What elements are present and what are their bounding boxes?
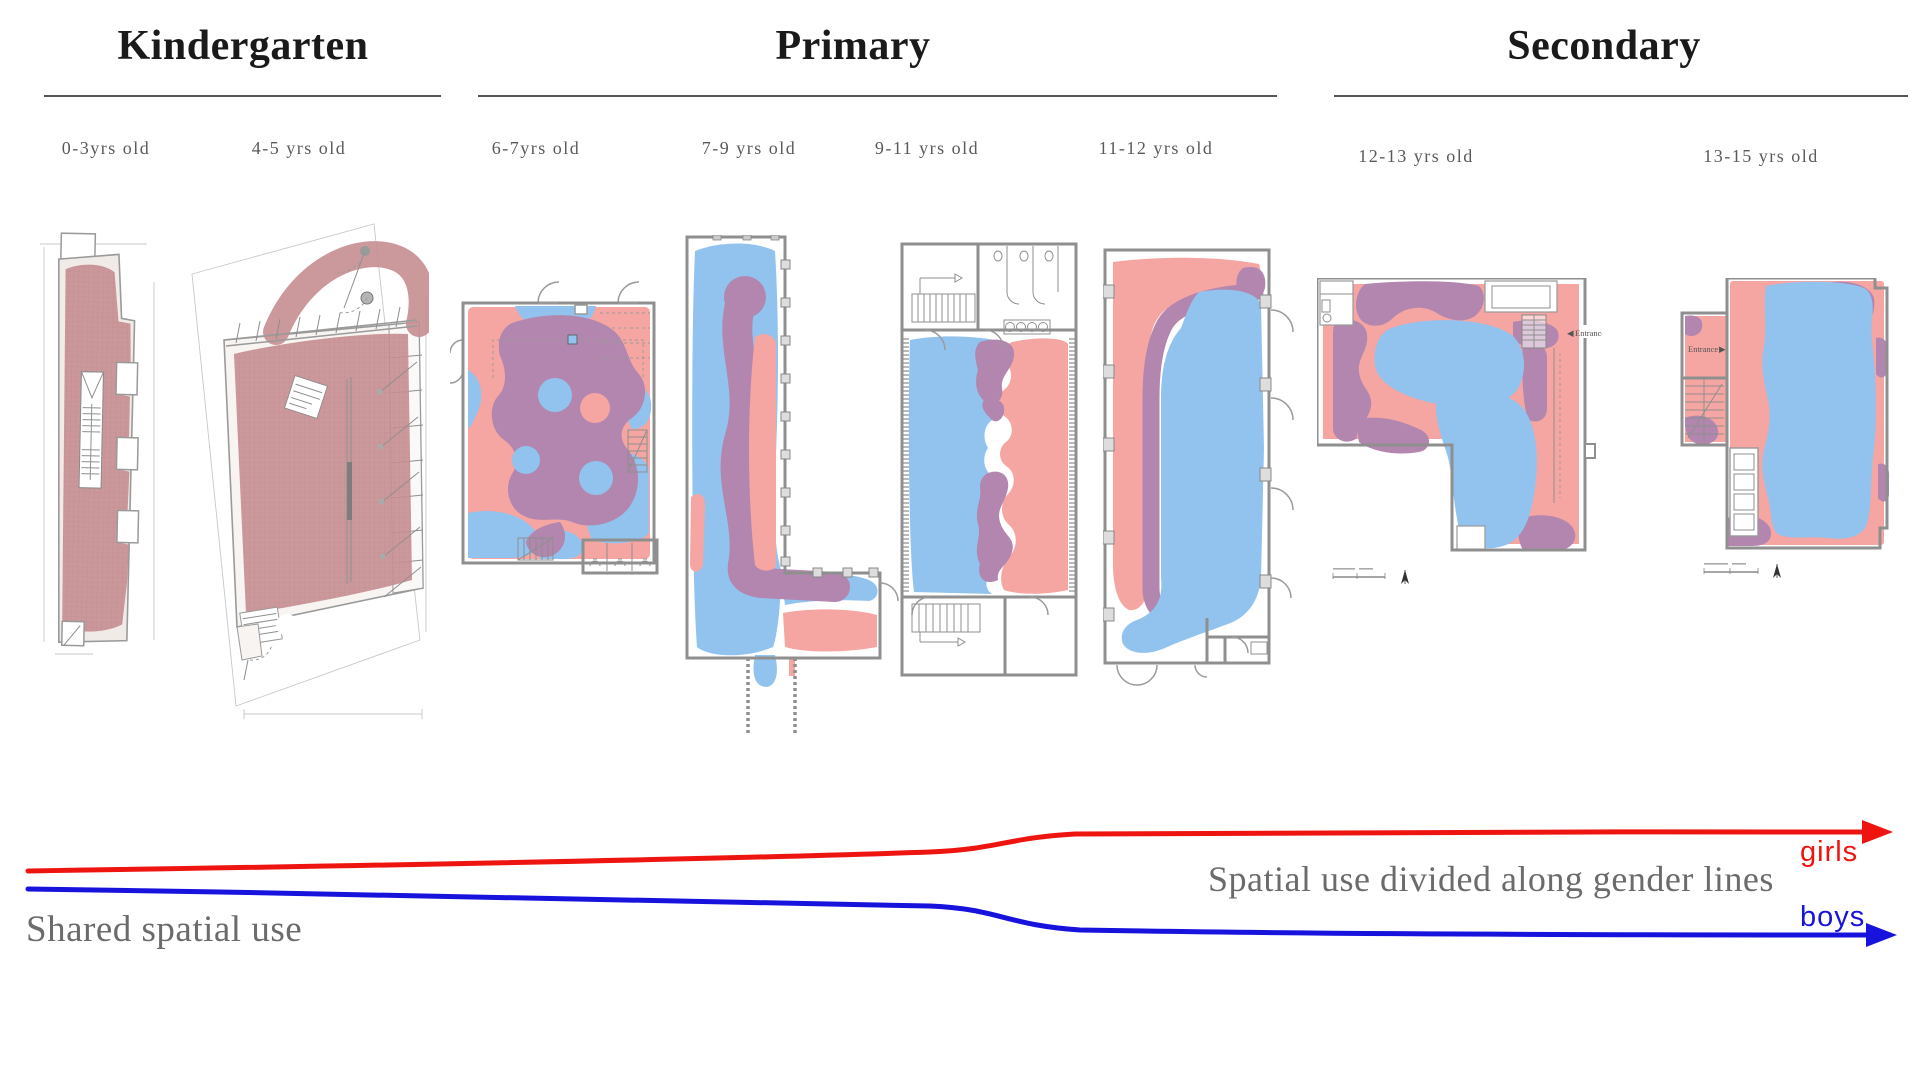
- floor-plan-6-7yrs-drawing: [450, 278, 660, 580]
- floor-plan-4-5yrs: [184, 212, 429, 747]
- floor-plan-12-13yrs-drawing: ◀ Entrance: [1317, 278, 1602, 593]
- stairs: [1522, 315, 1546, 348]
- floor-plan-9-11yrs-drawing: [900, 242, 1078, 677]
- pilasters: [781, 260, 878, 577]
- floor-plan-7-9yrs-drawing: [685, 235, 900, 740]
- side-room: [117, 510, 139, 542]
- floor-plan-11-12yrs-drawing: [1103, 248, 1298, 688]
- girls-area-blob: [749, 334, 776, 570]
- floor-plan-0-3yrs: [35, 222, 161, 662]
- floor-plan-4-5yrs-drawing: [184, 212, 429, 747]
- shared-spatial-use-label: Shared spatial use: [26, 908, 302, 951]
- entrance-annotation: Entrance: [1575, 328, 1602, 338]
- small-room: [1457, 526, 1485, 550]
- bathroom: [1320, 281, 1353, 325]
- boys-area-blob: [579, 461, 613, 495]
- shared-overlap-blob: [1876, 338, 1887, 378]
- entrance-arrow-icon: ◀: [1567, 328, 1574, 338]
- boys-area-blob: [754, 655, 777, 687]
- north-arrow-icon: [1773, 564, 1781, 578]
- floor-plan-13-15yrs-drawing: Entrance ▶: [1680, 278, 1892, 580]
- rule-primary: [478, 95, 1277, 97]
- shared-use-hook-arm: [276, 254, 422, 332]
- scale-bar: [1704, 563, 1758, 574]
- entrance-annotation: Entrance: [1688, 344, 1718, 354]
- age-label-13-15: 13-15 yrs old: [1676, 146, 1846, 167]
- age-label-0-3: 0-3yrs old: [21, 138, 191, 159]
- section-title-primary: Primary: [653, 22, 1053, 70]
- rule-kindergarten: [44, 95, 441, 97]
- age-label-7-9: 7-9 yrs old: [664, 138, 834, 159]
- age-label-9-11: 9-11 yrs old: [842, 138, 1012, 159]
- side-room: [116, 437, 138, 469]
- scale-bar: [1333, 568, 1385, 579]
- floor-plan-11-12yrs: [1103, 248, 1298, 688]
- side-room: [116, 362, 138, 394]
- age-label-11-12: 11-12 yrs old: [1071, 138, 1241, 159]
- section-title-kindergarten: Kindergarten: [43, 22, 443, 70]
- floor-plan-6-7yrs: [450, 278, 660, 580]
- gender-timeline: [0, 800, 1920, 1000]
- girls-arrowhead-icon: [1862, 820, 1893, 844]
- shared-overlap-blob: [1522, 343, 1547, 422]
- floor-plan-9-11yrs: [900, 242, 1078, 677]
- divided-spatial-use-label: Spatial use divided along gender lines: [1208, 858, 1788, 900]
- floor-plan-12-13yrs: ◀ Entrance: [1317, 278, 1602, 593]
- boys-arrowhead-icon: [1866, 923, 1897, 947]
- floor-plan-7-9yrs: [685, 235, 900, 740]
- age-label-6-7: 6-7yrs old: [451, 138, 621, 159]
- boys-area-blob: [1762, 282, 1876, 539]
- girls-area-blob: [783, 609, 877, 651]
- floor-plan-0-3yrs-drawing: [35, 222, 161, 662]
- shared-overlap-blob: [492, 315, 645, 525]
- floor-plan-13-15yrs: Entrance ▶: [1680, 278, 1892, 580]
- girls-area-blob: [690, 494, 705, 572]
- boys-label: boys: [1800, 901, 1865, 934]
- age-label-4-5: 4-5 yrs old: [214, 138, 384, 159]
- boys-area-blob: [512, 446, 540, 474]
- entrance-arrow-icon: ▶: [1719, 344, 1726, 354]
- girls-area-blob: [580, 393, 610, 423]
- section-title-secondary: Secondary: [1404, 22, 1804, 70]
- entrance-stub: [237, 624, 262, 660]
- rule-secondary: [1334, 95, 1908, 97]
- boys-area-blob: [538, 378, 572, 412]
- spatial-use-diagram: Kindergarten Primary Secondary 0-3yrs ol…: [0, 0, 1920, 1080]
- age-label-12-13: 12-13 yrs old: [1331, 146, 1501, 167]
- north-arrow-icon: [1401, 570, 1409, 584]
- girls-label: girls: [1800, 836, 1858, 869]
